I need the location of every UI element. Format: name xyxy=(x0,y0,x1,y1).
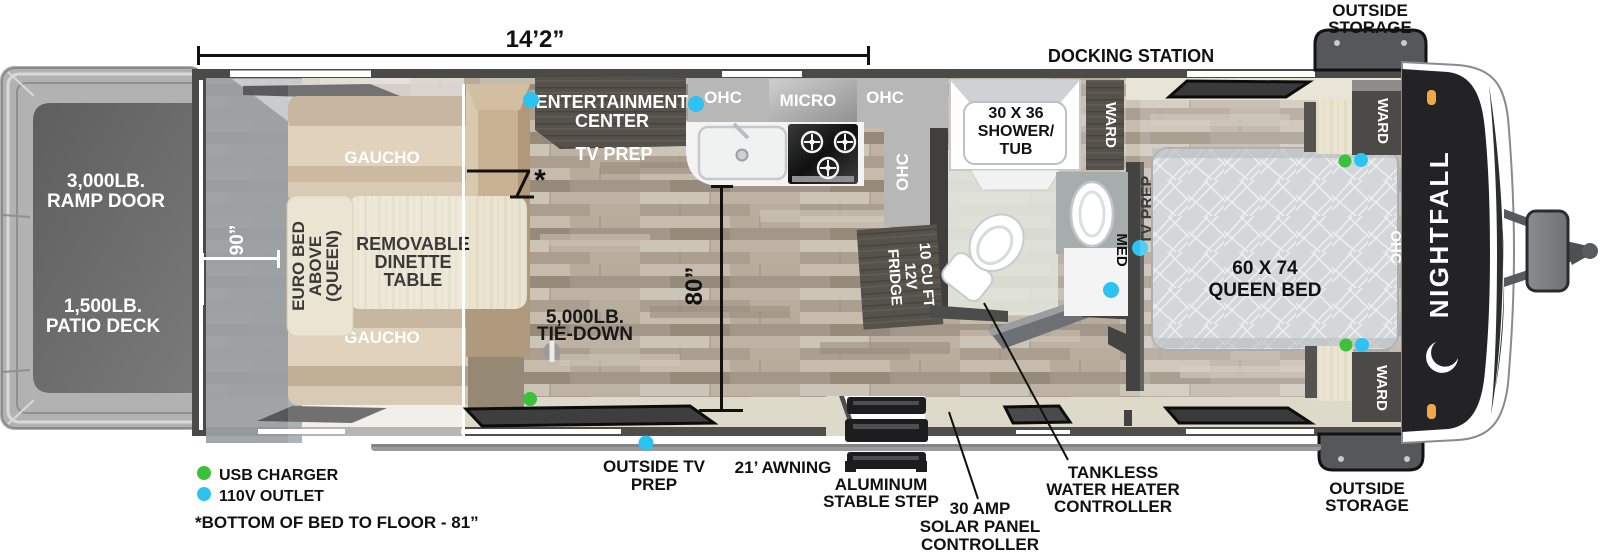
svg-text:30 X 36: 30 X 36 xyxy=(988,105,1043,122)
svg-text:RAMP DOOR: RAMP DOOR xyxy=(47,191,165,212)
svg-text:TUB: TUB xyxy=(1000,141,1033,158)
svg-text:TV PREP: TV PREP xyxy=(575,144,652,164)
svg-text:21’ AWNING: 21’ AWNING xyxy=(735,458,832,477)
svg-text:NIGHTFALL: NIGHTFALL xyxy=(1424,150,1454,318)
svg-text:*BOTTOM OF BED TO FLOOR - 81”: *BOTTOM OF BED TO FLOOR - 81” xyxy=(195,513,479,532)
svg-text:STORAGE: STORAGE xyxy=(1328,18,1412,37)
svg-text:ENTERTAINMENT: ENTERTAINMENT xyxy=(536,92,689,112)
svg-text:QUEEN BED: QUEEN BED xyxy=(1209,280,1322,301)
svg-text:SOLAR PANEL: SOLAR PANEL xyxy=(920,517,1041,536)
svg-text:OHC: OHC xyxy=(866,88,904,107)
svg-text:80”: 80” xyxy=(681,267,708,306)
svg-text:DOCKING STATION: DOCKING STATION xyxy=(1048,46,1214,66)
svg-text:MED: MED xyxy=(1113,233,1130,267)
svg-text:OUTSIDE TV: OUTSIDE TV xyxy=(603,457,706,476)
svg-text:3,000LB.: 3,000LB. xyxy=(67,171,145,192)
svg-text:CONTROLLER: CONTROLLER xyxy=(921,535,1039,554)
svg-text:STABLE STEP: STABLE STEP xyxy=(823,492,939,511)
svg-text:CENTER: CENTER xyxy=(575,111,649,131)
svg-text:60 X 74: 60 X 74 xyxy=(1232,258,1298,279)
svg-text:OHC: OHC xyxy=(704,88,742,107)
svg-text:SHOWER/: SHOWER/ xyxy=(978,123,1055,140)
svg-text:OHC: OHC xyxy=(893,153,912,191)
svg-text:CONTROLLER: CONTROLLER xyxy=(1054,497,1172,516)
svg-text:WARD: WARD xyxy=(1374,98,1391,144)
svg-text:MICRO: MICRO xyxy=(780,91,837,110)
svg-text:WARD: WARD xyxy=(1373,365,1390,411)
svg-text:30 AMP: 30 AMP xyxy=(950,499,1011,518)
svg-text:STORAGE: STORAGE xyxy=(1325,496,1409,515)
svg-text:WARD: WARD xyxy=(1102,102,1119,148)
svg-text:90”: 90” xyxy=(227,225,248,256)
svg-text:*: * xyxy=(534,164,546,197)
svg-text:PREP: PREP xyxy=(631,475,677,494)
svg-text:PATIO DECK: PATIO DECK xyxy=(46,316,161,337)
svg-text:1,500LB.: 1,500LB. xyxy=(64,296,142,317)
svg-text:USB CHARGER: USB CHARGER xyxy=(219,467,339,484)
svg-text:14’2”: 14’2” xyxy=(506,26,565,53)
svg-text:OHC: OHC xyxy=(1387,230,1404,264)
svg-text:110V OUTLET: 110V OUTLET xyxy=(219,488,324,505)
